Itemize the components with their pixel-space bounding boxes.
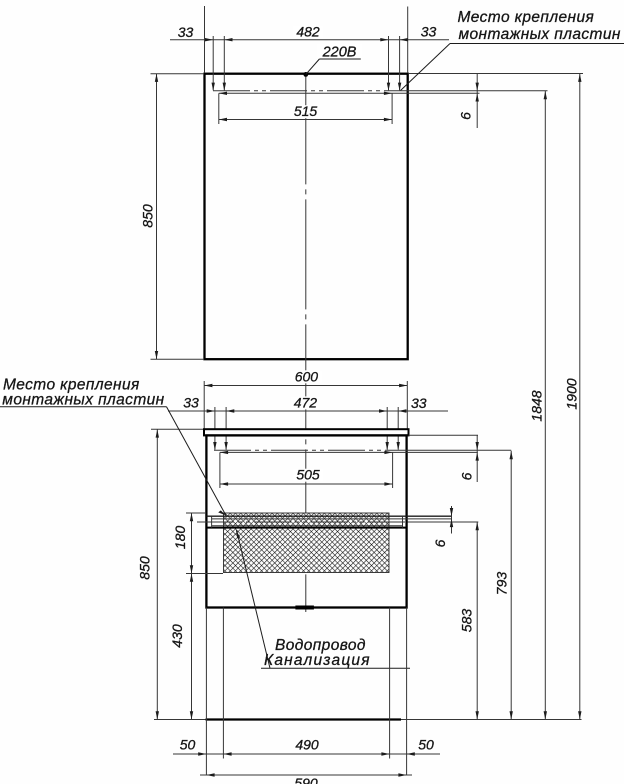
- svg-text:33: 33: [421, 23, 437, 39]
- svg-text:472: 472: [294, 394, 318, 410]
- svg-text:1900: 1900: [564, 378, 580, 409]
- svg-text:180: 180: [172, 526, 188, 550]
- svg-text:50: 50: [180, 737, 196, 753]
- svg-text:33: 33: [183, 394, 199, 410]
- svg-text:6: 6: [432, 539, 448, 547]
- svg-text:583: 583: [459, 609, 475, 633]
- svg-text:600: 600: [295, 368, 319, 384]
- svg-text:6: 6: [459, 472, 475, 480]
- svg-text:590: 590: [294, 775, 318, 784]
- svg-text:Место крепления: Место крепления: [458, 9, 595, 26]
- svg-text:50: 50: [418, 737, 434, 753]
- svg-text:850: 850: [137, 556, 153, 580]
- svg-text:515: 515: [294, 103, 318, 119]
- svg-text:482: 482: [296, 23, 320, 39]
- svg-text:430: 430: [169, 624, 185, 648]
- svg-text:Канализация: Канализация: [264, 652, 371, 669]
- svg-text:220В: 220В: [322, 45, 357, 61]
- svg-text:6: 6: [458, 112, 474, 120]
- svg-text:монтажных пластин: монтажных пластин: [459, 26, 621, 43]
- svg-text:33: 33: [178, 24, 194, 40]
- svg-text:1848: 1848: [529, 390, 545, 421]
- svg-text:505: 505: [296, 467, 320, 483]
- svg-text:монтажных пластин: монтажных пластин: [2, 392, 164, 409]
- svg-text:490: 490: [295, 737, 319, 753]
- svg-text:33: 33: [411, 395, 427, 411]
- svg-text:850: 850: [140, 204, 156, 228]
- svg-text:793: 793: [494, 572, 510, 596]
